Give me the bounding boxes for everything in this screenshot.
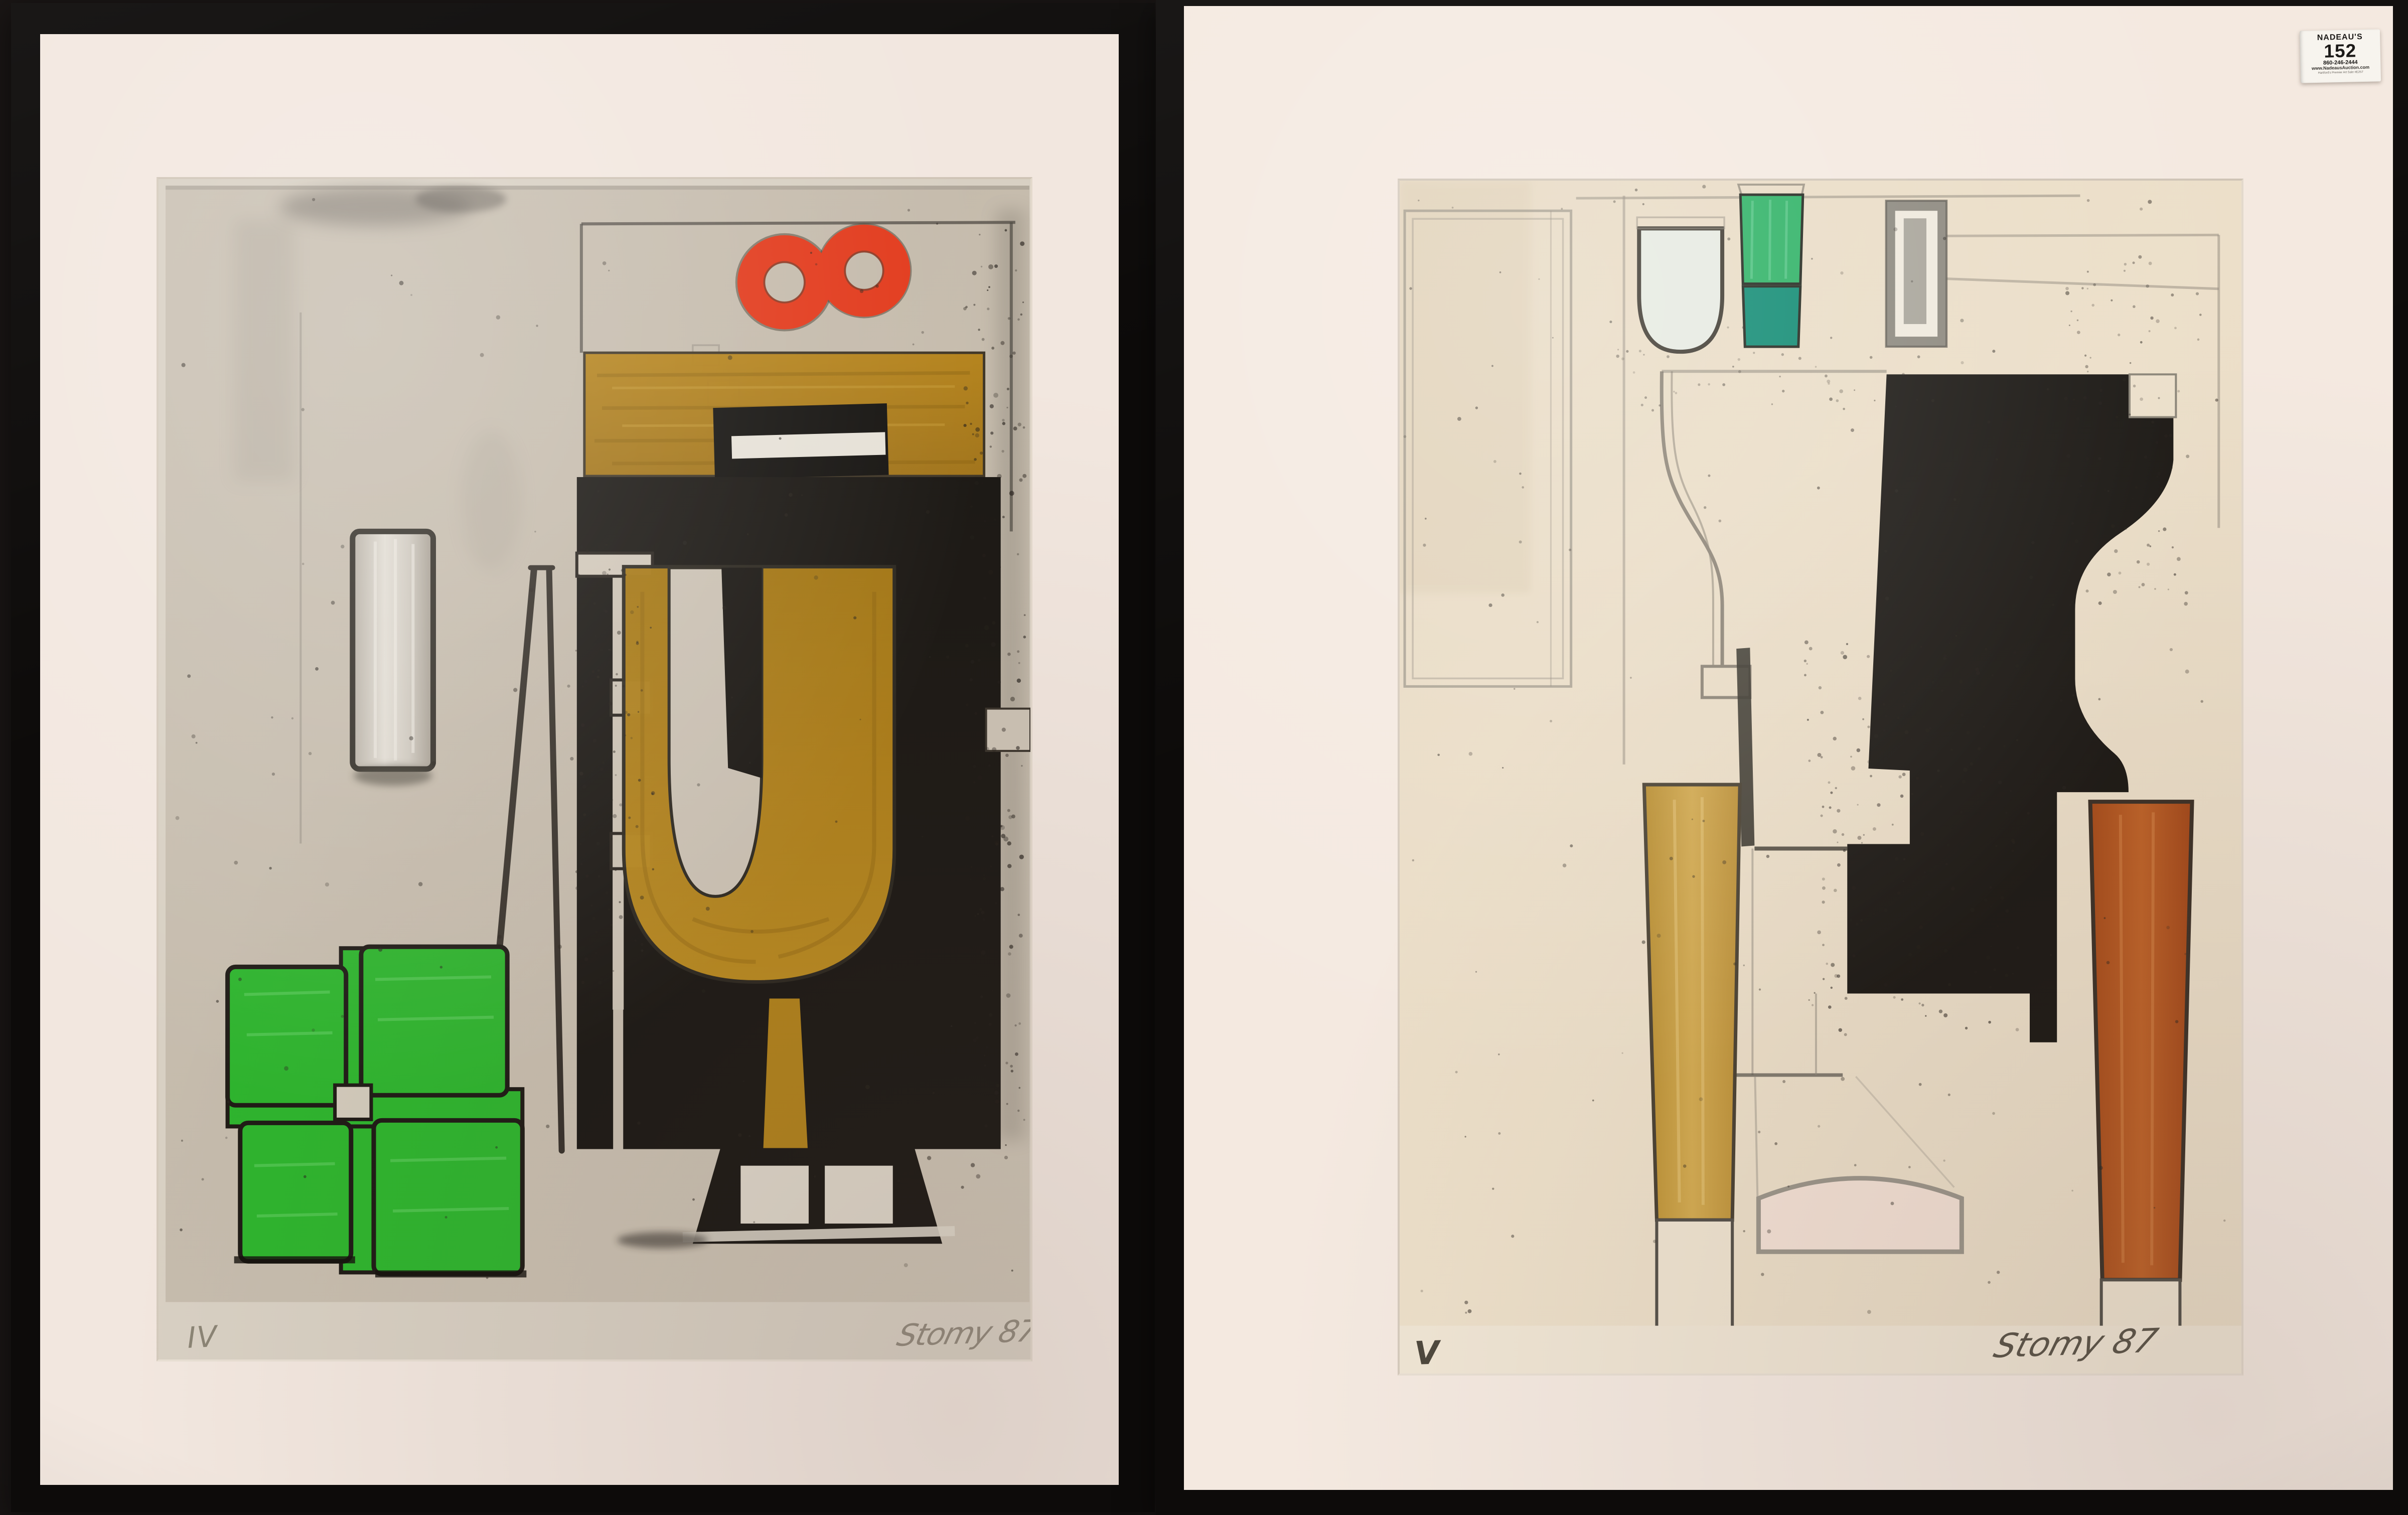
- left-mat: IV Stomy 87: [40, 34, 1119, 1485]
- left-artwork: IV Stomy 87: [159, 179, 1030, 1359]
- right-artwork: V Stomy 87: [1400, 181, 2241, 1374]
- mass-top-notch: [2130, 374, 2176, 417]
- right-frame: V Stomy 87: [1156, 0, 2408, 1515]
- right-mat-window: V Stomy 87: [1398, 179, 2243, 1376]
- ochre-u: [624, 567, 894, 982]
- clover-center-gap: [335, 1085, 371, 1119]
- auction-tag: NADEAU'S 152 860-246-2444 www.NadeausAuc…: [2300, 29, 2381, 83]
- green-clover: [228, 947, 527, 1277]
- auction-photo: IV Stomy 87: [0, 0, 2408, 1515]
- grey-column: [353, 531, 433, 786]
- rust-column: [2090, 802, 2192, 1339]
- green-glass: [1738, 185, 1804, 347]
- lot-number: 152: [2300, 41, 2380, 62]
- white-notch-right: [986, 709, 1030, 751]
- ochre-band: [584, 353, 984, 479]
- left-signature: Stomy 87: [893, 1314, 1030, 1353]
- right-edition-mark: V: [1414, 1334, 1442, 1373]
- corner-wash: [1400, 181, 1531, 593]
- left-frame: IV Stomy 87: [11, 3, 1155, 1512]
- grey-frame: [1886, 201, 1947, 347]
- u-black-sliver: [721, 568, 762, 778]
- shield-shape: [1639, 228, 1722, 352]
- left-edition-mark: IV: [186, 1319, 220, 1355]
- ochre-column-foot: [1657, 1220, 1732, 1338]
- ochre-column: [1644, 785, 1740, 1338]
- right-mat: V Stomy 87: [1184, 6, 2393, 1490]
- left-mat-window: IV Stomy 87: [157, 177, 1032, 1361]
- right-signature: Stomy 87: [1990, 1321, 2162, 1366]
- band-black-notch: [713, 403, 888, 479]
